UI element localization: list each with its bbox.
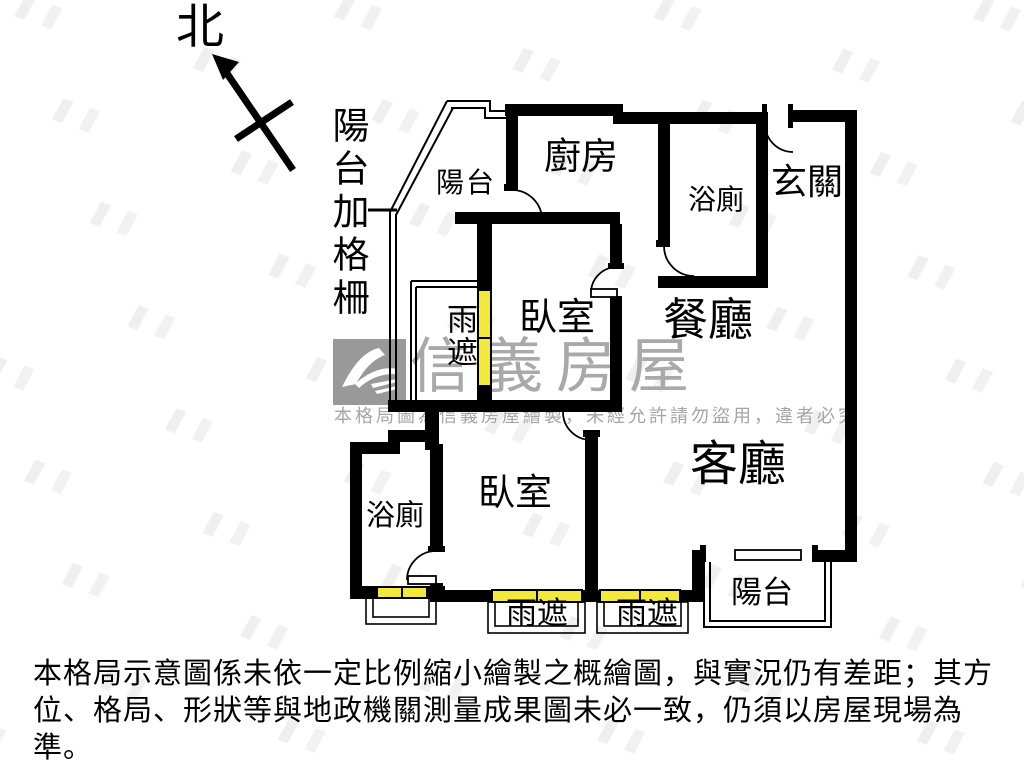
label-bedroom-top: 臥室 [519, 299, 595, 337]
label-rain-shield-bottom-right: 雨遮 [616, 598, 678, 629]
floor-plan-image: 信義房屋 本格局圖為信義房屋繪製，未經允許請勿盜用，違者必究 [0, 0, 1024, 768]
disclaimer-line-1: 本格局示意圖係未依一定比例縮小繪製之概繪圖，與實況仍有差距；其方 [33, 656, 1003, 693]
label-rain-shield-left: 雨遮 [444, 303, 475, 373]
label-dining: 餐廳 [663, 298, 753, 343]
label-rain-shield-bottom-left: 雨遮 [506, 598, 568, 629]
label-living: 客廳 [690, 441, 786, 489]
balcony-grille-label: 陽台加格柵 [328, 106, 365, 336]
label-bath-top: 浴廁 [688, 187, 744, 215]
sinyi-logo-watermark [333, 339, 406, 405]
north-label: 北 [176, 4, 224, 52]
disclaimer-line-2: 位、格局、形狀等與地政機關測量成果圖未必一致，仍須以房屋現場為準。 [33, 693, 1003, 767]
label-balcony-top: 陽台 [436, 170, 496, 198]
sliding-door-symbol [735, 550, 801, 560]
label-entry: 玄關 [771, 164, 843, 200]
north-arrow-icon [212, 54, 293, 170]
sinyi-roof-icon [333, 339, 406, 405]
label-bedroom-bottom: 臥室 [478, 475, 552, 512]
watermark-notice-text: 本格局圖為信義房屋繪製，未經允許請勿盜用，違者必究 [334, 407, 859, 425]
label-bath-bottom: 浴廁 [366, 502, 424, 531]
disclaimer-text: 本格局示意圖係未依一定比例縮小繪製之概繪圖，與實況仍有差距；其方 位、格局、形狀… [33, 656, 1003, 768]
label-balcony-bottom: 陽台 [731, 577, 793, 608]
label-kitchen: 廚房 [544, 139, 618, 176]
